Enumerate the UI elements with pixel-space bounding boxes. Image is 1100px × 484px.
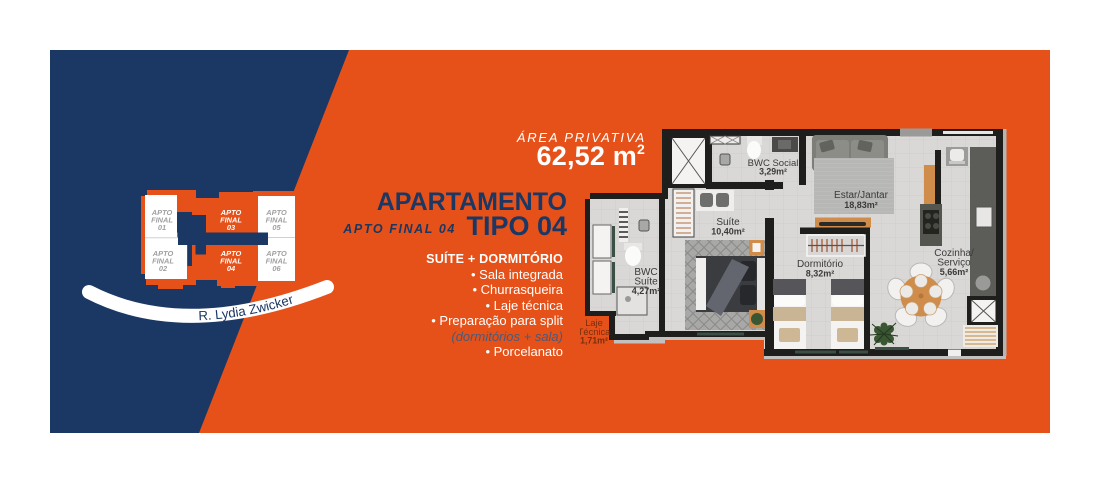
svg-text:LajeTécnica1,71m²: LajeTécnica1,71m²	[580, 318, 611, 346]
svg-text:BWCSuíte4,27m²: BWCSuíte4,27m²	[632, 267, 661, 296]
svg-text:R. Lydia Zwicker: R. Lydia Zwicker	[198, 291, 295, 323]
svg-text:Cozinha/Serviço5,66m²: Cozinha/Serviço5,66m²	[934, 248, 974, 277]
